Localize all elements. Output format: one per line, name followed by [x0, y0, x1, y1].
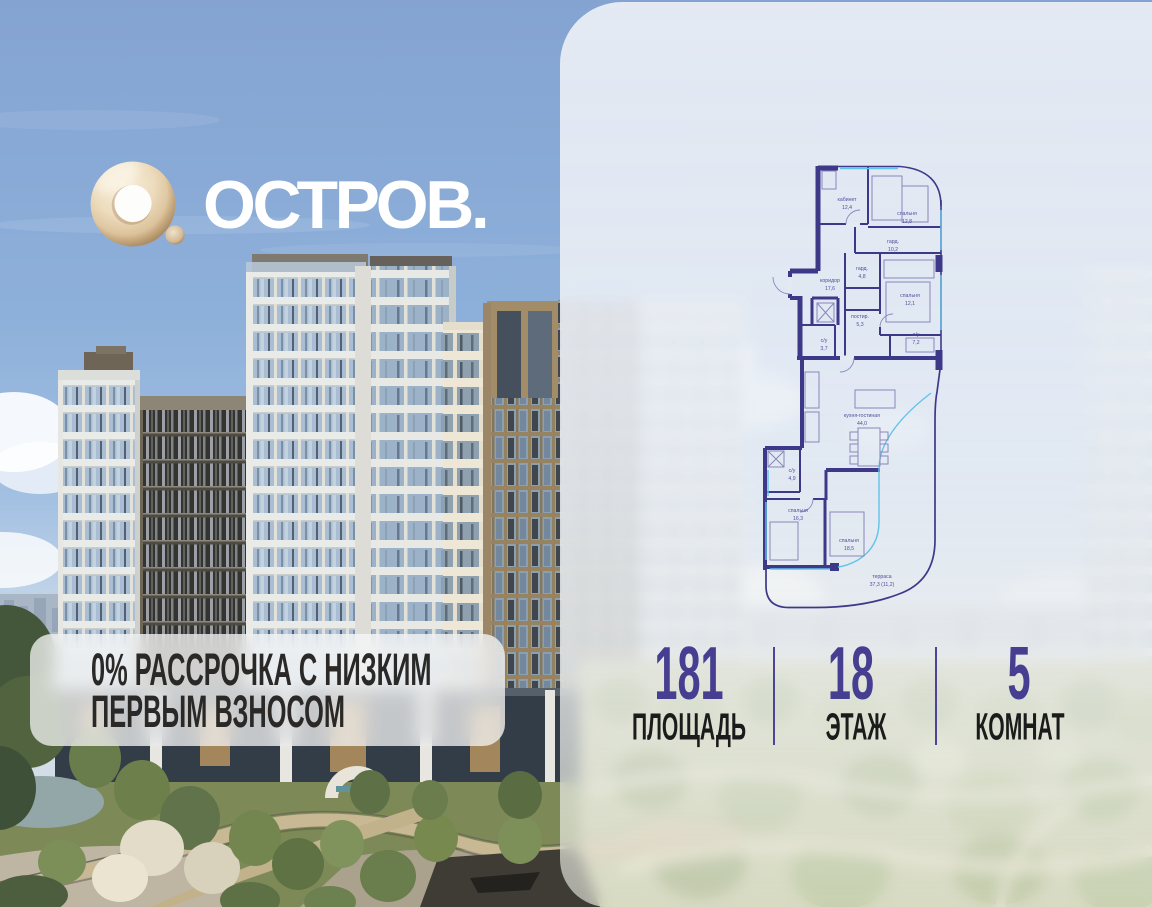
svg-text:ОСТРОВ.: ОСТРОВ. — [203, 167, 486, 243]
